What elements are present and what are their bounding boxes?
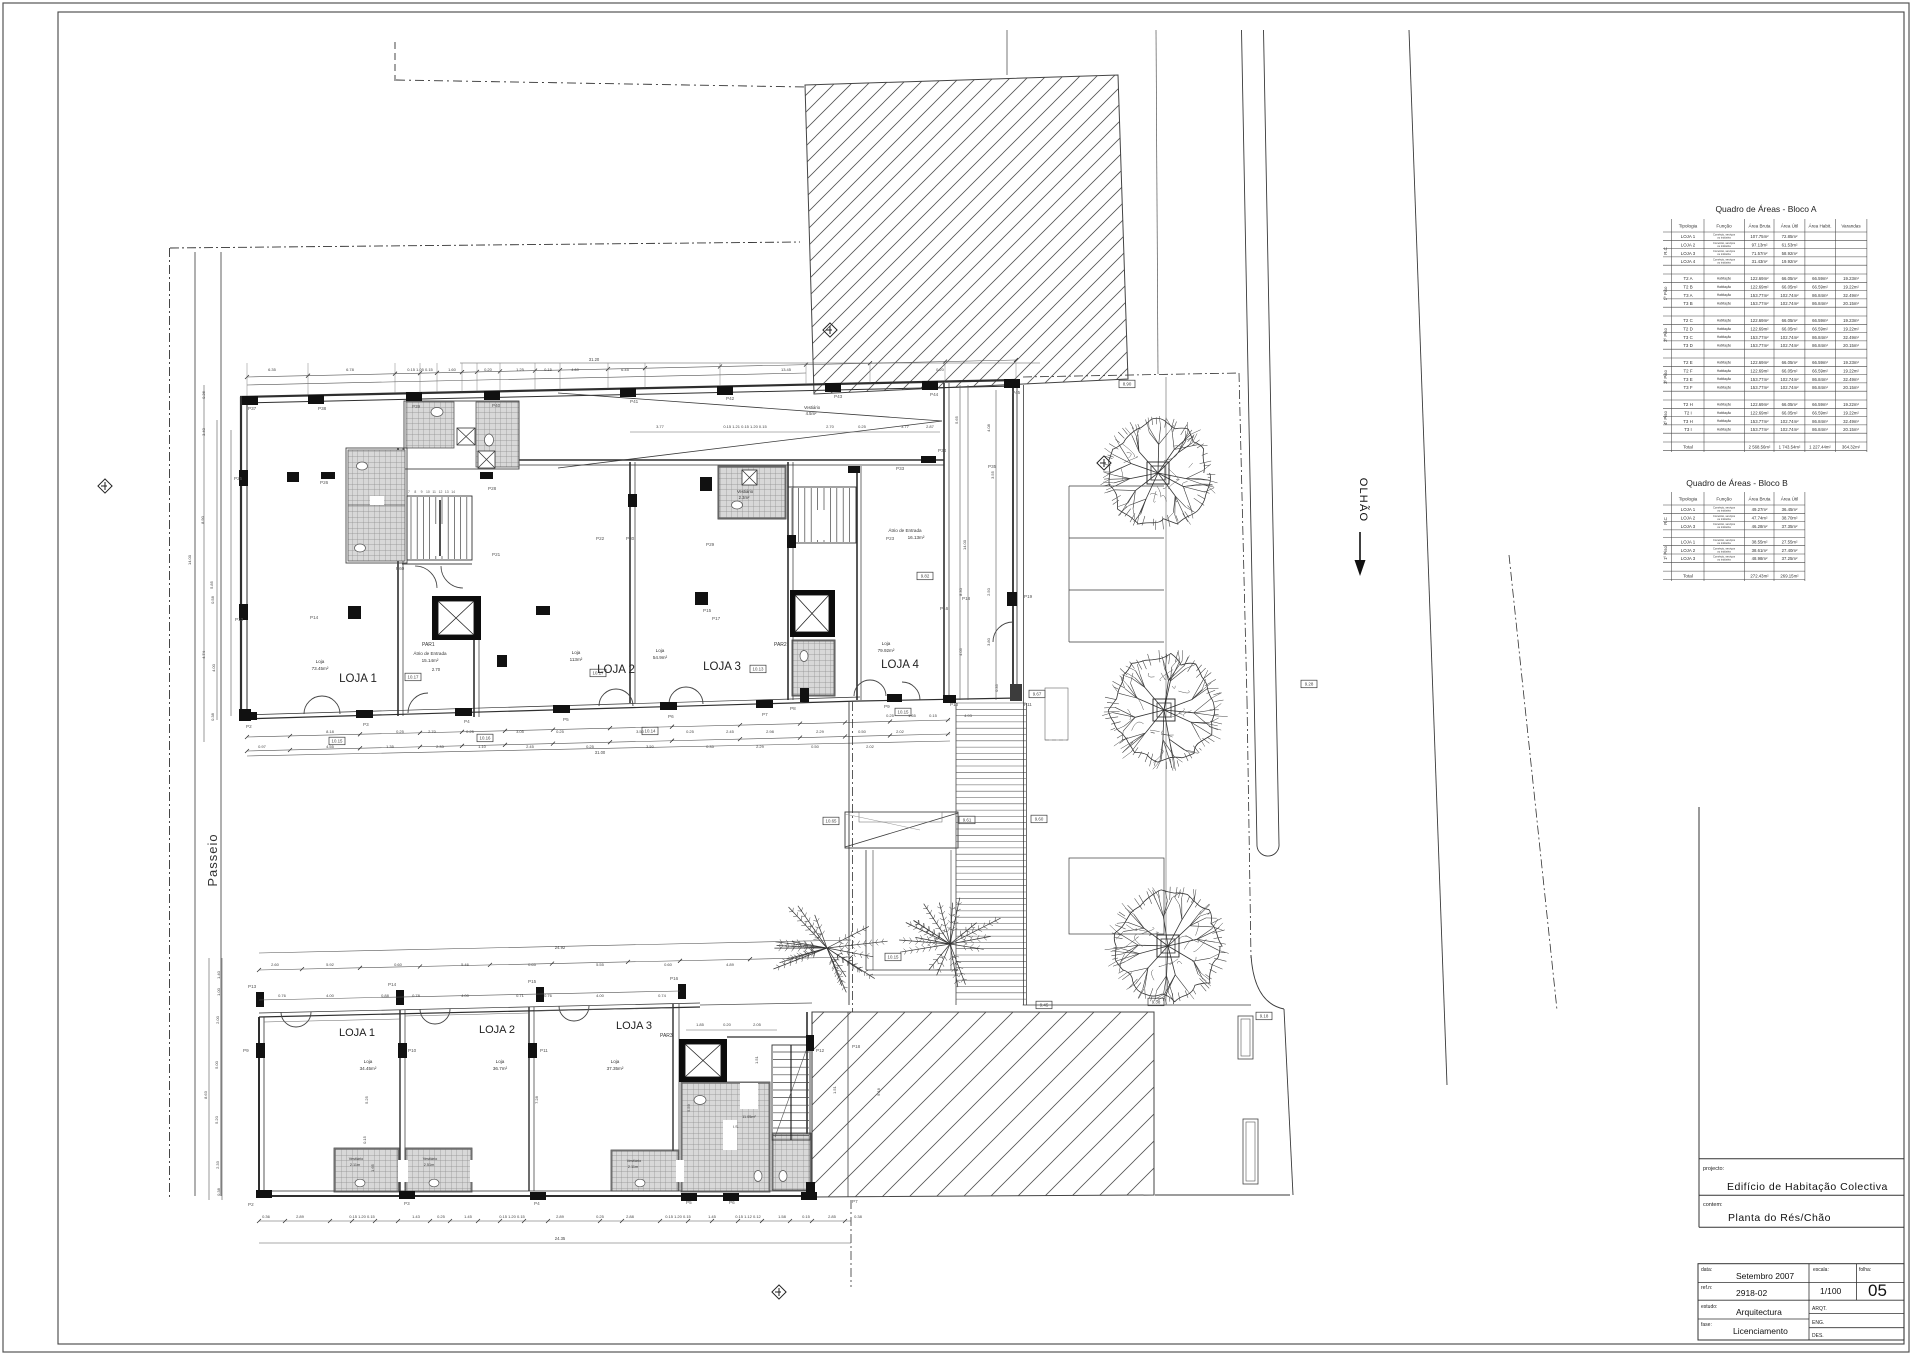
svg-text:LOJA 2: LOJA 2 [479, 1024, 515, 1036]
svg-text:1.25: 1.25 [516, 367, 525, 372]
svg-text:Loja: Loja [316, 659, 325, 664]
svg-text:0.35: 0.35 [994, 683, 999, 692]
svg-text:T3 H: T3 H [1683, 419, 1693, 424]
svg-text:fase:: fase: [1701, 1322, 1712, 1328]
svg-text:Quadro de Áreas - Bloco B: Quadro de Áreas - Bloco B [1686, 478, 1788, 488]
svg-text:2.89: 2.89 [556, 1214, 565, 1219]
svg-text:38.55m²: 38.55m² [1752, 540, 1768, 545]
svg-text:Loja: Loja [496, 1059, 505, 1064]
svg-text:P29: P29 [706, 542, 715, 547]
svg-text:66.05m²: 66.05m² [1782, 411, 1798, 416]
svg-text:8.30: 8.30 [958, 587, 963, 596]
svg-text:0.15 1.20 0.15: 0.15 1.20 0.15 [349, 1214, 375, 1219]
svg-text:1.00: 1.00 [216, 987, 221, 996]
svg-text:8.90: 8.90 [1123, 382, 1132, 387]
svg-text:ARQT.: ARQT. [1812, 1306, 1827, 1312]
svg-text:19.22m²: 19.22m² [1843, 402, 1859, 407]
svg-text:0.20: 0.20 [484, 367, 493, 372]
svg-text:Planta do Rés/Chão: Planta do Rés/Chão [1728, 1212, 1831, 1224]
svg-text:LOJA 2: LOJA 2 [1681, 243, 1696, 248]
svg-text:31.00: 31.00 [595, 750, 606, 755]
svg-text:8.63: 8.63 [203, 1090, 208, 1099]
svg-text:2.89: 2.89 [296, 1214, 305, 1219]
svg-text:46.28m²: 46.28m² [1752, 524, 1768, 529]
svg-text:66.05m²: 66.05m² [1782, 318, 1798, 323]
svg-text:10.15: 10.15 [898, 710, 910, 715]
svg-text:0.36: 0.36 [262, 1214, 271, 1219]
svg-text:20.15m²: 20.15m² [1843, 301, 1859, 306]
svg-text:T2 H: T2 H [1683, 402, 1693, 407]
svg-text:153.77m²: 153.77m² [1750, 385, 1769, 390]
svg-text:P6: P6 [729, 1200, 735, 1205]
svg-text:5.00: 5.00 [214, 1060, 219, 1069]
svg-text:P34: P34 [938, 448, 947, 453]
svg-text:Função: Função [1716, 224, 1732, 229]
svg-text:122.69m²: 122.69m² [1750, 327, 1769, 332]
svg-text:Habitação: Habitação [1717, 343, 1732, 347]
svg-text:T2 E: T2 E [1683, 360, 1692, 365]
svg-text:Habitação: Habitação [1717, 369, 1732, 373]
svg-text:Habitação: Habitação [1717, 335, 1732, 339]
svg-text:LOJA 3: LOJA 3 [1681, 524, 1696, 529]
svg-text:48.98m²: 48.98m² [1752, 556, 1768, 561]
svg-text:37.25m²: 37.25m² [1782, 556, 1798, 561]
svg-text:9.38: 9.38 [1152, 1000, 1161, 1005]
svg-text:3.80: 3.80 [986, 637, 991, 646]
svg-text:32.49m²: 32.49m² [1843, 419, 1859, 424]
svg-text:LOJA 1: LOJA 1 [339, 1027, 375, 1039]
svg-text:P40: P40 [492, 403, 501, 408]
svg-text:102.74m²: 102.74m² [1780, 293, 1799, 298]
svg-text:Quadro de Áreas - Bloco A: Quadro de Áreas - Bloco A [1715, 204, 1816, 214]
svg-text:153.77m²: 153.77m² [1750, 377, 1769, 382]
svg-text:contem:: contem: [1703, 1202, 1723, 1208]
svg-text:10.16: 10.16 [480, 736, 492, 741]
svg-text:Vestiário: Vestiário [423, 1157, 438, 1161]
svg-text:Vestiário: Vestiário [349, 1157, 364, 1161]
svg-text:Habitação: Habitação [1717, 277, 1732, 281]
svg-text:107.75m²: 107.75m² [1750, 234, 1769, 239]
svg-text:P13: P13 [235, 617, 244, 622]
svg-text:1º Piso: 1º Piso [1663, 546, 1668, 560]
svg-text:27.55m²: 27.55m² [1782, 540, 1798, 545]
svg-text:0.35: 0.35 [706, 744, 715, 749]
svg-text:LOJA 2: LOJA 2 [1681, 516, 1696, 521]
svg-text:11.05m²: 11.05m² [742, 1115, 756, 1119]
svg-text:Habitação: Habitação [1717, 427, 1732, 431]
svg-text:5.65: 5.65 [954, 415, 959, 424]
svg-text:47.74m²: 47.74m² [1752, 516, 1768, 521]
svg-text:4.74: 4.74 [201, 650, 206, 659]
svg-text:Habitação: Habitação [1717, 285, 1732, 289]
svg-text:1.43: 1.43 [412, 1214, 421, 1219]
svg-text:0.20: 0.20 [723, 1022, 732, 1027]
svg-text:38.70m²: 38.70m² [1782, 516, 1798, 521]
svg-text:T3 D: T3 D [1683, 343, 1693, 348]
svg-text:P23: P23 [886, 536, 895, 541]
svg-text:49.27m²: 49.27m² [1752, 507, 1768, 512]
svg-text:122.69m²: 122.69m² [1750, 360, 1769, 365]
svg-text:153.77m²: 153.77m² [1750, 301, 1769, 306]
svg-text:estudo:: estudo: [1701, 1304, 1717, 1310]
svg-text:5.55: 5.55 [596, 962, 605, 967]
svg-text:projecto:: projecto: [1703, 1166, 1725, 1172]
svg-text:P30: P30 [626, 536, 635, 541]
svg-text:153.77m²: 153.77m² [1750, 343, 1769, 348]
svg-text:113m²: 113m² [570, 657, 583, 662]
svg-text:PAR2: PAR2 [774, 642, 787, 648]
svg-text:2918-02: 2918-02 [1736, 1288, 1767, 1298]
svg-text:Função: Função [1716, 497, 1732, 502]
svg-text:10.13: 10.13 [753, 667, 765, 672]
svg-text:P3: P3 [404, 1201, 410, 1206]
svg-text:T2 D: T2 D [1683, 327, 1693, 332]
svg-text:P15: P15 [528, 979, 537, 984]
svg-text:LOJA 1: LOJA 1 [1681, 234, 1696, 239]
svg-text:4.05: 4.05 [958, 647, 963, 656]
svg-text:P35: P35 [988, 464, 997, 469]
svg-text:2.3m²: 2.3m² [739, 495, 750, 500]
svg-text:Total: Total [1683, 574, 1693, 579]
svg-text:19.22m²: 19.22m² [1843, 285, 1859, 290]
svg-text:7: 7 [408, 490, 410, 494]
svg-text:0.25: 0.25 [396, 729, 405, 734]
svg-text:1º Piso: 1º Piso [1663, 286, 1668, 300]
svg-text:19.22m²: 19.22m² [1843, 411, 1859, 416]
svg-text:24.35: 24.35 [555, 1236, 566, 1241]
svg-text:Área Bruta: Área Bruta [1749, 496, 1771, 502]
svg-text:P21: P21 [492, 552, 501, 557]
svg-text:19.23m²: 19.23m² [1843, 318, 1859, 323]
svg-text:34.45m²: 34.45m² [360, 1066, 377, 1071]
svg-text:2.02: 2.02 [866, 744, 875, 749]
svg-text:71.57m²: 71.57m² [1752, 251, 1768, 256]
svg-text:P39: P39 [412, 404, 421, 409]
svg-text:9.45: 9.45 [1040, 1003, 1049, 1008]
svg-text:0.25: 0.25 [437, 1214, 446, 1219]
svg-text:102.74m²: 102.74m² [1780, 385, 1799, 390]
svg-text:LOJA 1: LOJA 1 [339, 673, 377, 685]
svg-text:ou indústria: ou indústria [1717, 558, 1731, 562]
svg-text:Vestiário: Vestiário [627, 1159, 642, 1163]
svg-text:R.C: R.C [1663, 517, 1668, 525]
svg-text:102.74m²: 102.74m² [1780, 427, 1799, 432]
svg-text:86.84m²: 86.84m² [1812, 377, 1828, 382]
svg-text:P12: P12 [816, 1048, 825, 1053]
svg-text:T2 B: T2 B [1683, 285, 1692, 290]
svg-text:0.65: 0.65 [528, 962, 537, 967]
svg-text:66.05m²: 66.05m² [1782, 285, 1798, 290]
svg-text:10.17: 10.17 [593, 671, 605, 676]
svg-text:P44: P44 [930, 392, 939, 397]
svg-text:122.69m²: 122.69m² [1750, 402, 1769, 407]
svg-text:9.67: 9.67 [1033, 692, 1042, 697]
svg-text:4.00: 4.00 [211, 663, 216, 672]
svg-text:153.77m²: 153.77m² [1750, 335, 1769, 340]
svg-text:Área Bruta: Área Bruta [1749, 223, 1771, 229]
svg-text:0.78: 0.78 [412, 993, 421, 998]
svg-text:9.18: 9.18 [876, 1087, 881, 1096]
svg-text:58.92m²: 58.92m² [1782, 251, 1798, 256]
svg-text:Total: Total [1683, 444, 1693, 449]
svg-text:72.85m²: 72.85m² [1782, 234, 1798, 239]
svg-text:10.17: 10.17 [408, 675, 420, 680]
svg-text:ou indústria: ou indústria [1717, 261, 1731, 265]
svg-text:13.45: 13.45 [781, 367, 792, 372]
svg-text:66.05m²: 66.05m² [1782, 402, 1798, 407]
svg-text:0.58: 0.58 [210, 595, 215, 604]
svg-text:6.78: 6.78 [346, 367, 355, 372]
svg-text:0.15 1.20 0.15: 0.15 1.20 0.15 [499, 1214, 525, 1219]
svg-text:P42: P42 [726, 396, 735, 401]
svg-text:36.7m²: 36.7m² [493, 1066, 508, 1071]
svg-text:LOJA 3: LOJA 3 [1681, 556, 1696, 561]
svg-text:20.15m²: 20.15m² [1843, 427, 1859, 432]
svg-text:ou indústria: ou indústria [1717, 517, 1731, 521]
svg-text:10: 10 [426, 490, 430, 494]
svg-text:1.45: 1.45 [708, 1214, 717, 1219]
svg-text:4º Piso: 4º Piso [1663, 411, 1668, 425]
svg-text:86.84m²: 86.84m² [1812, 293, 1828, 298]
svg-text:86.84m²: 86.84m² [1812, 343, 1828, 348]
svg-text:24.92: 24.92 [555, 945, 566, 950]
svg-text:102.74m²: 102.74m² [1780, 419, 1799, 424]
svg-text:Tipologia: Tipologia [1679, 224, 1698, 229]
svg-text:0.76: 0.76 [278, 993, 287, 998]
svg-text:0.15: 0.15 [929, 713, 938, 718]
svg-text:86.84m²: 86.84m² [1812, 385, 1828, 390]
svg-text:153.77m²: 153.77m² [1750, 419, 1769, 424]
svg-text:Habitação: Habitação [1717, 411, 1732, 415]
svg-text:DES.: DES. [1812, 1333, 1824, 1339]
svg-text:5.20: 5.20 [214, 1115, 219, 1124]
svg-text:2.45: 2.45 [526, 744, 535, 749]
svg-text:0.88: 0.88 [381, 993, 390, 998]
svg-text:20.15m²: 20.15m² [1843, 385, 1859, 390]
svg-text:122.69m²: 122.69m² [1750, 276, 1769, 281]
svg-text:122.69m²: 122.69m² [1750, 318, 1769, 323]
svg-text:79.92m²: 79.92m² [878, 648, 895, 653]
svg-text:Área Útil: Área Útil [1781, 496, 1799, 502]
svg-text:Setembro 2007: Setembro 2007 [1736, 1271, 1794, 1281]
svg-text:4.60: 4.60 [571, 367, 580, 372]
svg-text:ou indústria: ou indústria [1717, 244, 1731, 248]
svg-text:3.77: 3.77 [656, 424, 665, 429]
svg-text:2.29: 2.29 [816, 729, 825, 734]
svg-text:Vestiário: Vestiário [737, 489, 754, 494]
svg-text:T3 B: T3 B [1683, 301, 1692, 306]
svg-text:Habitação: Habitação [1717, 403, 1732, 407]
svg-text:P16: P16 [940, 606, 949, 611]
svg-text:9.82: 9.82 [921, 574, 930, 579]
svg-text:66.59m²: 66.59m² [1812, 285, 1828, 290]
svg-text:2.70: 2.70 [432, 667, 441, 672]
svg-text:P17: P17 [712, 616, 721, 621]
svg-text:3.50: 3.50 [646, 744, 655, 749]
svg-text:P4: P4 [534, 1201, 540, 1206]
svg-text:102.74m²: 102.74m² [1780, 343, 1799, 348]
svg-text:4.00: 4.00 [326, 993, 335, 998]
svg-text:0.25: 0.25 [596, 1214, 605, 1219]
svg-text:R.C: R.C [1663, 247, 1668, 255]
svg-text:P15: P15 [703, 608, 712, 613]
svg-text:19.23m²: 19.23m² [1843, 360, 1859, 365]
svg-text:T3 A: T3 A [1683, 293, 1692, 298]
svg-text:3º Piso: 3º Piso [1663, 370, 1668, 384]
svg-text:0.25: 0.25 [686, 729, 695, 734]
svg-text:66.05m²: 66.05m² [1782, 276, 1798, 281]
svg-text:2.33: 2.33 [215, 1160, 220, 1169]
svg-text:1.65: 1.65 [370, 1163, 375, 1172]
svg-text:4.5m²: 4.5m² [806, 411, 817, 416]
svg-text:8: 8 [414, 490, 416, 494]
svg-text:5.59: 5.59 [686, 1103, 691, 1112]
svg-text:0.25: 0.25 [886, 713, 895, 718]
svg-text:P19: P19 [1024, 594, 1033, 599]
svg-text:1.45: 1.45 [464, 1214, 473, 1219]
svg-text:9: 9 [421, 490, 423, 494]
svg-text:0.25: 0.25 [556, 729, 565, 734]
svg-text:P18: P18 [962, 596, 971, 601]
svg-text:1.35: 1.35 [386, 744, 395, 749]
svg-text:Habitação: Habitação [1717, 361, 1732, 365]
svg-text:66.59m²: 66.59m² [1812, 402, 1828, 407]
svg-text:Habitação: Habitação [1717, 385, 1732, 389]
svg-text:P5: P5 [686, 1200, 692, 1205]
svg-text:9.18: 9.18 [1260, 1014, 1269, 1019]
svg-text:32.49m²: 32.49m² [1843, 335, 1859, 340]
svg-text:1.85: 1.85 [696, 1022, 705, 1027]
svg-text:Área Habit.: Área Habit. [1809, 223, 1832, 229]
svg-text:ou indústria: ou indústria [1717, 549, 1731, 553]
svg-text:32.49m²: 32.49m² [1843, 293, 1859, 298]
svg-text:ENG.: ENG. [1812, 1320, 1824, 1326]
svg-text:P7: P7 [852, 1199, 858, 1204]
svg-text:0.15: 0.15 [802, 1214, 811, 1219]
svg-text:0.36: 0.36 [201, 390, 206, 399]
svg-text:Varandas: Varandas [1841, 224, 1861, 229]
svg-text:5.85: 5.85 [209, 580, 214, 589]
svg-text:Habitação: Habitação [1717, 319, 1732, 323]
svg-text:2.88: 2.88 [626, 1214, 635, 1219]
svg-text:0.15 1.05 0.15: 0.15 1.05 0.15 [407, 367, 433, 372]
svg-text:32.49m²: 32.49m² [1843, 377, 1859, 382]
svg-text:2º Piso: 2º Piso [1663, 328, 1668, 342]
svg-text:122.69m²: 122.69m² [1750, 369, 1769, 374]
svg-text:6.35: 6.35 [268, 367, 277, 372]
svg-text:66.59m²: 66.59m² [1812, 318, 1828, 323]
svg-text:1 743.54m²: 1 743.54m² [1779, 444, 1801, 449]
svg-text:16.13m²: 16.13m² [908, 535, 925, 540]
svg-text:1.60: 1.60 [448, 367, 457, 372]
svg-text:66.59m²: 66.59m² [1812, 276, 1828, 281]
svg-text:I.S.: I.S. [733, 1125, 739, 1129]
svg-text:19.92m²: 19.92m² [1782, 259, 1798, 264]
svg-text:2.70: 2.70 [826, 424, 835, 429]
svg-text:T3 I: T3 I [1684, 427, 1692, 432]
svg-text:LOJA 2: LOJA 2 [1681, 548, 1696, 553]
svg-text:0.25: 0.25 [586, 744, 595, 749]
svg-text:54.9m²: 54.9m² [653, 655, 668, 660]
svg-text:LOJA 4: LOJA 4 [881, 659, 919, 671]
svg-text:2.98: 2.98 [766, 729, 775, 734]
svg-text:6.45: 6.45 [621, 367, 630, 372]
svg-text:4.00: 4.00 [461, 993, 470, 998]
svg-text:LOJA 3: LOJA 3 [1681, 251, 1696, 256]
svg-text:86.84m²: 86.84m² [1812, 301, 1828, 306]
svg-text:37.35m²: 37.35m² [607, 1066, 624, 1071]
svg-text:9.28: 9.28 [1305, 682, 1314, 687]
svg-text:10.65: 10.65 [826, 819, 838, 824]
svg-text:Loja: Loja [611, 1059, 620, 1064]
svg-text:2.05: 2.05 [753, 1022, 762, 1027]
svg-text:05: 05 [1868, 1281, 1887, 1300]
svg-text:38.61m²: 38.61m² [1752, 548, 1768, 553]
svg-text:27.40m²: 27.40m² [1782, 548, 1798, 553]
svg-text:LOJA 1: LOJA 1 [1681, 507, 1696, 512]
svg-text:0.97: 0.97 [258, 744, 267, 749]
svg-text:P6: P6 [668, 714, 674, 719]
svg-text:2.02: 2.02 [896, 729, 905, 734]
svg-text:P5: P5 [563, 717, 569, 722]
svg-text:LOJA 3: LOJA 3 [703, 661, 741, 673]
svg-text:0.50: 0.50 [811, 744, 820, 749]
svg-text:73.45m²: 73.45m² [312, 666, 329, 671]
svg-text:0.50: 0.50 [858, 729, 867, 734]
svg-text:66.59m²: 66.59m² [1812, 360, 1828, 365]
svg-text:31.20: 31.20 [589, 357, 600, 362]
svg-text:14: 14 [451, 490, 455, 494]
svg-text:102.74m²: 102.74m² [1780, 377, 1799, 382]
svg-text:LOJA 4: LOJA 4 [1681, 259, 1696, 264]
svg-text:66.05m²: 66.05m² [1782, 360, 1798, 365]
svg-text:10.15: 10.15 [332, 739, 344, 744]
svg-text:1.10: 1.10 [478, 744, 487, 749]
svg-text:2.35: 2.35 [436, 744, 445, 749]
svg-text:0.15 1.20 0.15: 0.15 1.20 0.15 [665, 1214, 691, 1219]
svg-text:8.90: 8.90 [200, 515, 205, 524]
svg-text:P14: P14 [388, 982, 397, 987]
svg-text:Habitação: Habitação [1717, 377, 1732, 381]
svg-text:Habitação: Habitação [1717, 327, 1732, 331]
svg-text:T2 I: T2 I [1684, 411, 1692, 416]
svg-text:5.25: 5.25 [364, 1095, 369, 1104]
svg-text:0.60: 0.60 [664, 962, 673, 967]
svg-text:4.00: 4.00 [596, 993, 605, 998]
svg-text:P28: P28 [488, 486, 497, 491]
svg-text:3.55: 3.55 [990, 470, 995, 479]
svg-text:8.18: 8.18 [326, 729, 335, 734]
svg-text:Vestiário: Vestiário [804, 405, 821, 410]
svg-text:P43: P43 [834, 394, 843, 399]
svg-text:Licenciamento: Licenciamento [1733, 1326, 1788, 1336]
svg-text:P25: P25 [234, 476, 243, 481]
svg-text:153.77m²: 153.77m² [1750, 293, 1769, 298]
svg-text:14.00: 14.00 [962, 539, 967, 550]
svg-text:Átrio de Entrada: Átrio de Entrada [413, 650, 447, 656]
svg-text:269.15m²: 269.15m² [1780, 574, 1799, 579]
svg-text:3.40: 3.40 [201, 427, 206, 436]
svg-text:66.05m²: 66.05m² [1782, 327, 1798, 332]
svg-text:P13: P13 [248, 984, 257, 989]
svg-text:4.89: 4.89 [726, 962, 735, 967]
svg-text:2.87: 2.87 [926, 424, 935, 429]
svg-text:P2: P2 [246, 724, 252, 729]
svg-text:1 227.44m²: 1 227.44m² [1809, 444, 1831, 449]
svg-text:36.45m²: 36.45m² [1782, 507, 1798, 512]
svg-text:P38: P38 [318, 406, 327, 411]
svg-text:10.15: 10.15 [888, 955, 900, 960]
